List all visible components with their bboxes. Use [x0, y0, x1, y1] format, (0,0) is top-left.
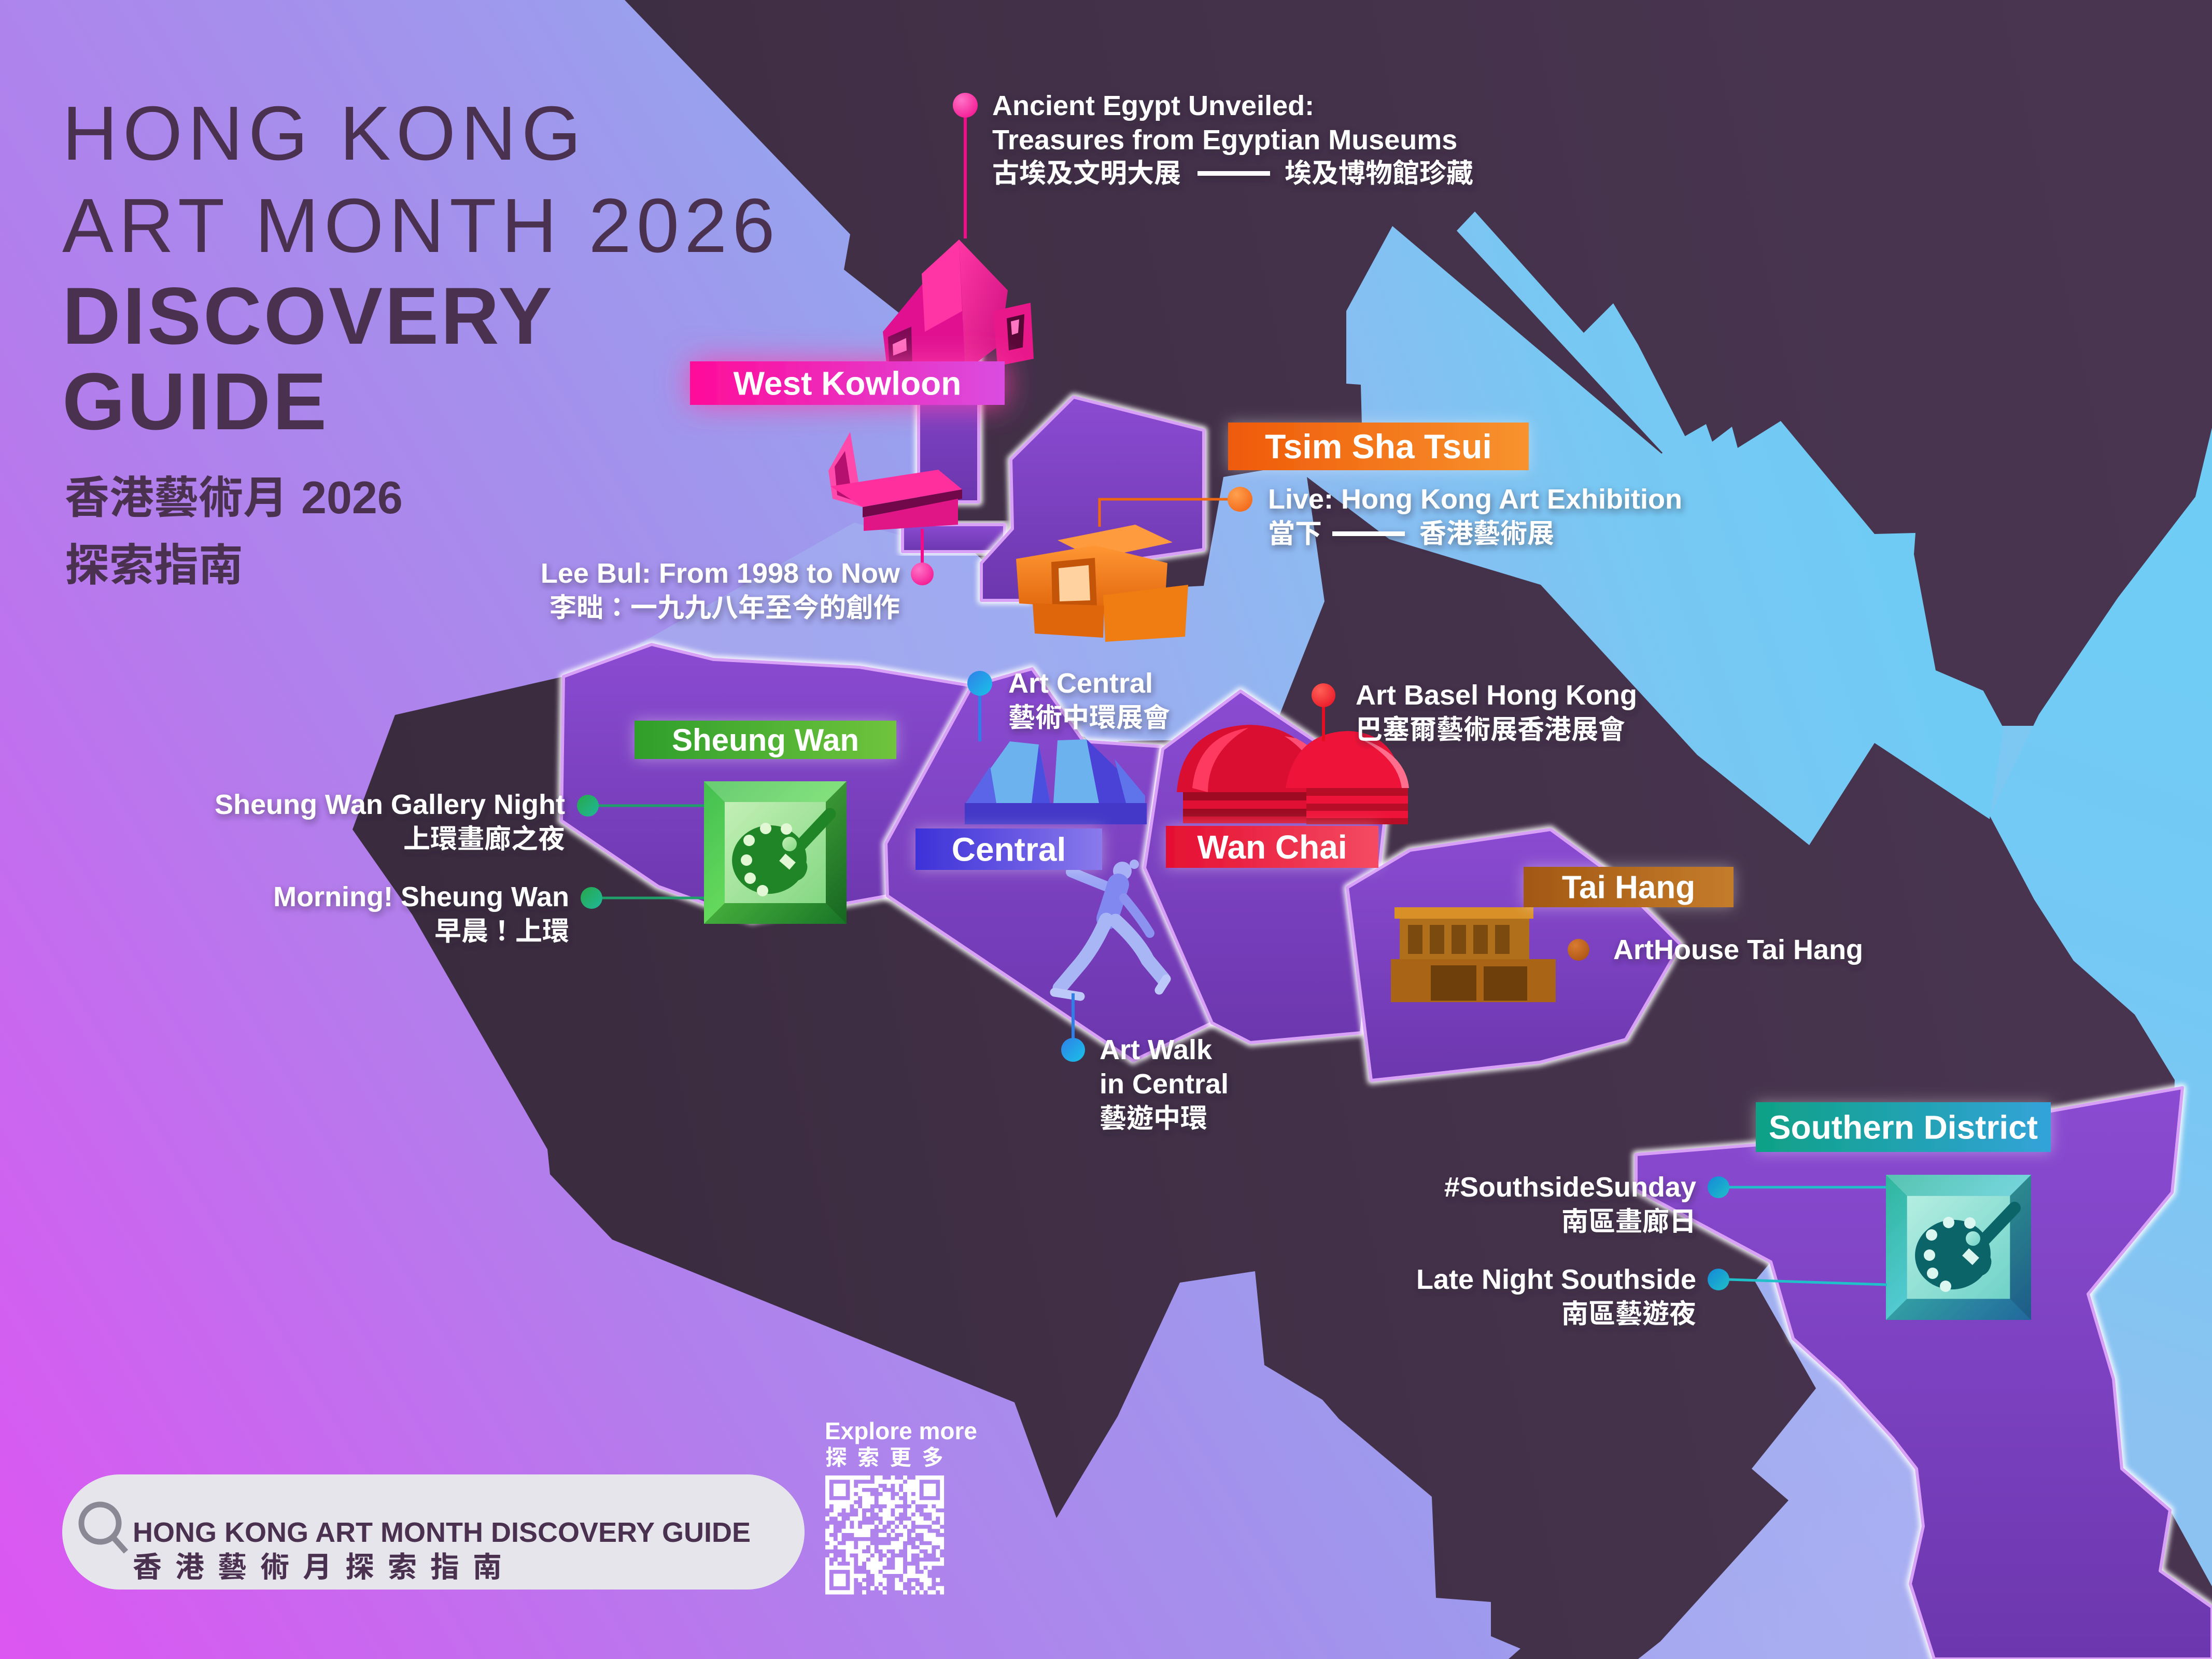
svg-text:Live: Hong Kong Art Exhibition: Live: Hong Kong Art Exhibition — [1268, 484, 1682, 515]
svg-text:Art Basel Hong Kong: Art Basel Hong Kong — [1356, 680, 1637, 711]
svg-text:Southern District: Southern District — [1769, 1108, 2038, 1146]
svg-text:in Central: in Central — [1100, 1068, 1229, 1100]
svg-text:#SouthsideSunday: #SouthsideSunday — [1444, 1172, 1696, 1203]
svg-text:Treasures from Egyptian Museum: Treasures from Egyptian Museums — [992, 124, 1457, 156]
svg-text:HONG KONG: HONG KONG — [62, 91, 586, 176]
svg-text:Central: Central — [952, 831, 1066, 868]
svg-text:Art Central: Art Central — [1008, 668, 1153, 699]
svg-text:Ancient Egypt Unveiled:: Ancient Egypt Unveiled: — [992, 90, 1314, 121]
svg-text:West Kowloon: West Kowloon — [734, 364, 962, 402]
svg-text:Sheung Wan Gallery Night: Sheung Wan Gallery Night — [215, 789, 565, 820]
svg-text:GUIDE: GUIDE — [62, 357, 329, 447]
svg-text:Explore more: Explore more — [825, 1417, 977, 1444]
svg-text:Tsim Sha Tsui: Tsim Sha Tsui — [1265, 427, 1492, 466]
svg-text:ART MONTH 2026: ART MONTH 2026 — [62, 183, 780, 269]
svg-text:Lee Bul: From 1998 to Now: Lee Bul: From 1998 to Now — [541, 558, 900, 589]
svg-text:Late Night Southside: Late Night Southside — [1416, 1264, 1696, 1295]
svg-text:Sheung Wan: Sheung Wan — [672, 723, 859, 757]
svg-text:DISCOVERY: DISCOVERY — [62, 271, 554, 361]
svg-text:Art Walk: Art Walk — [1100, 1034, 1213, 1065]
svg-text:Morning! Sheung Wan: Morning! Sheung Wan — [273, 881, 569, 912]
svg-text:Wan Chai: Wan Chai — [1197, 828, 1347, 866]
svg-text:HONG KONG ART MONTH DISCOVERY: HONG KONG ART MONTH DISCOVERY GUIDE — [133, 1517, 751, 1548]
svg-text:Tai Hang: Tai Hang — [1562, 870, 1695, 906]
svg-text:ArtHouse Tai Hang: ArtHouse Tai Hang — [1613, 934, 1863, 965]
svg-text:2026: 2026 — [301, 472, 403, 523]
